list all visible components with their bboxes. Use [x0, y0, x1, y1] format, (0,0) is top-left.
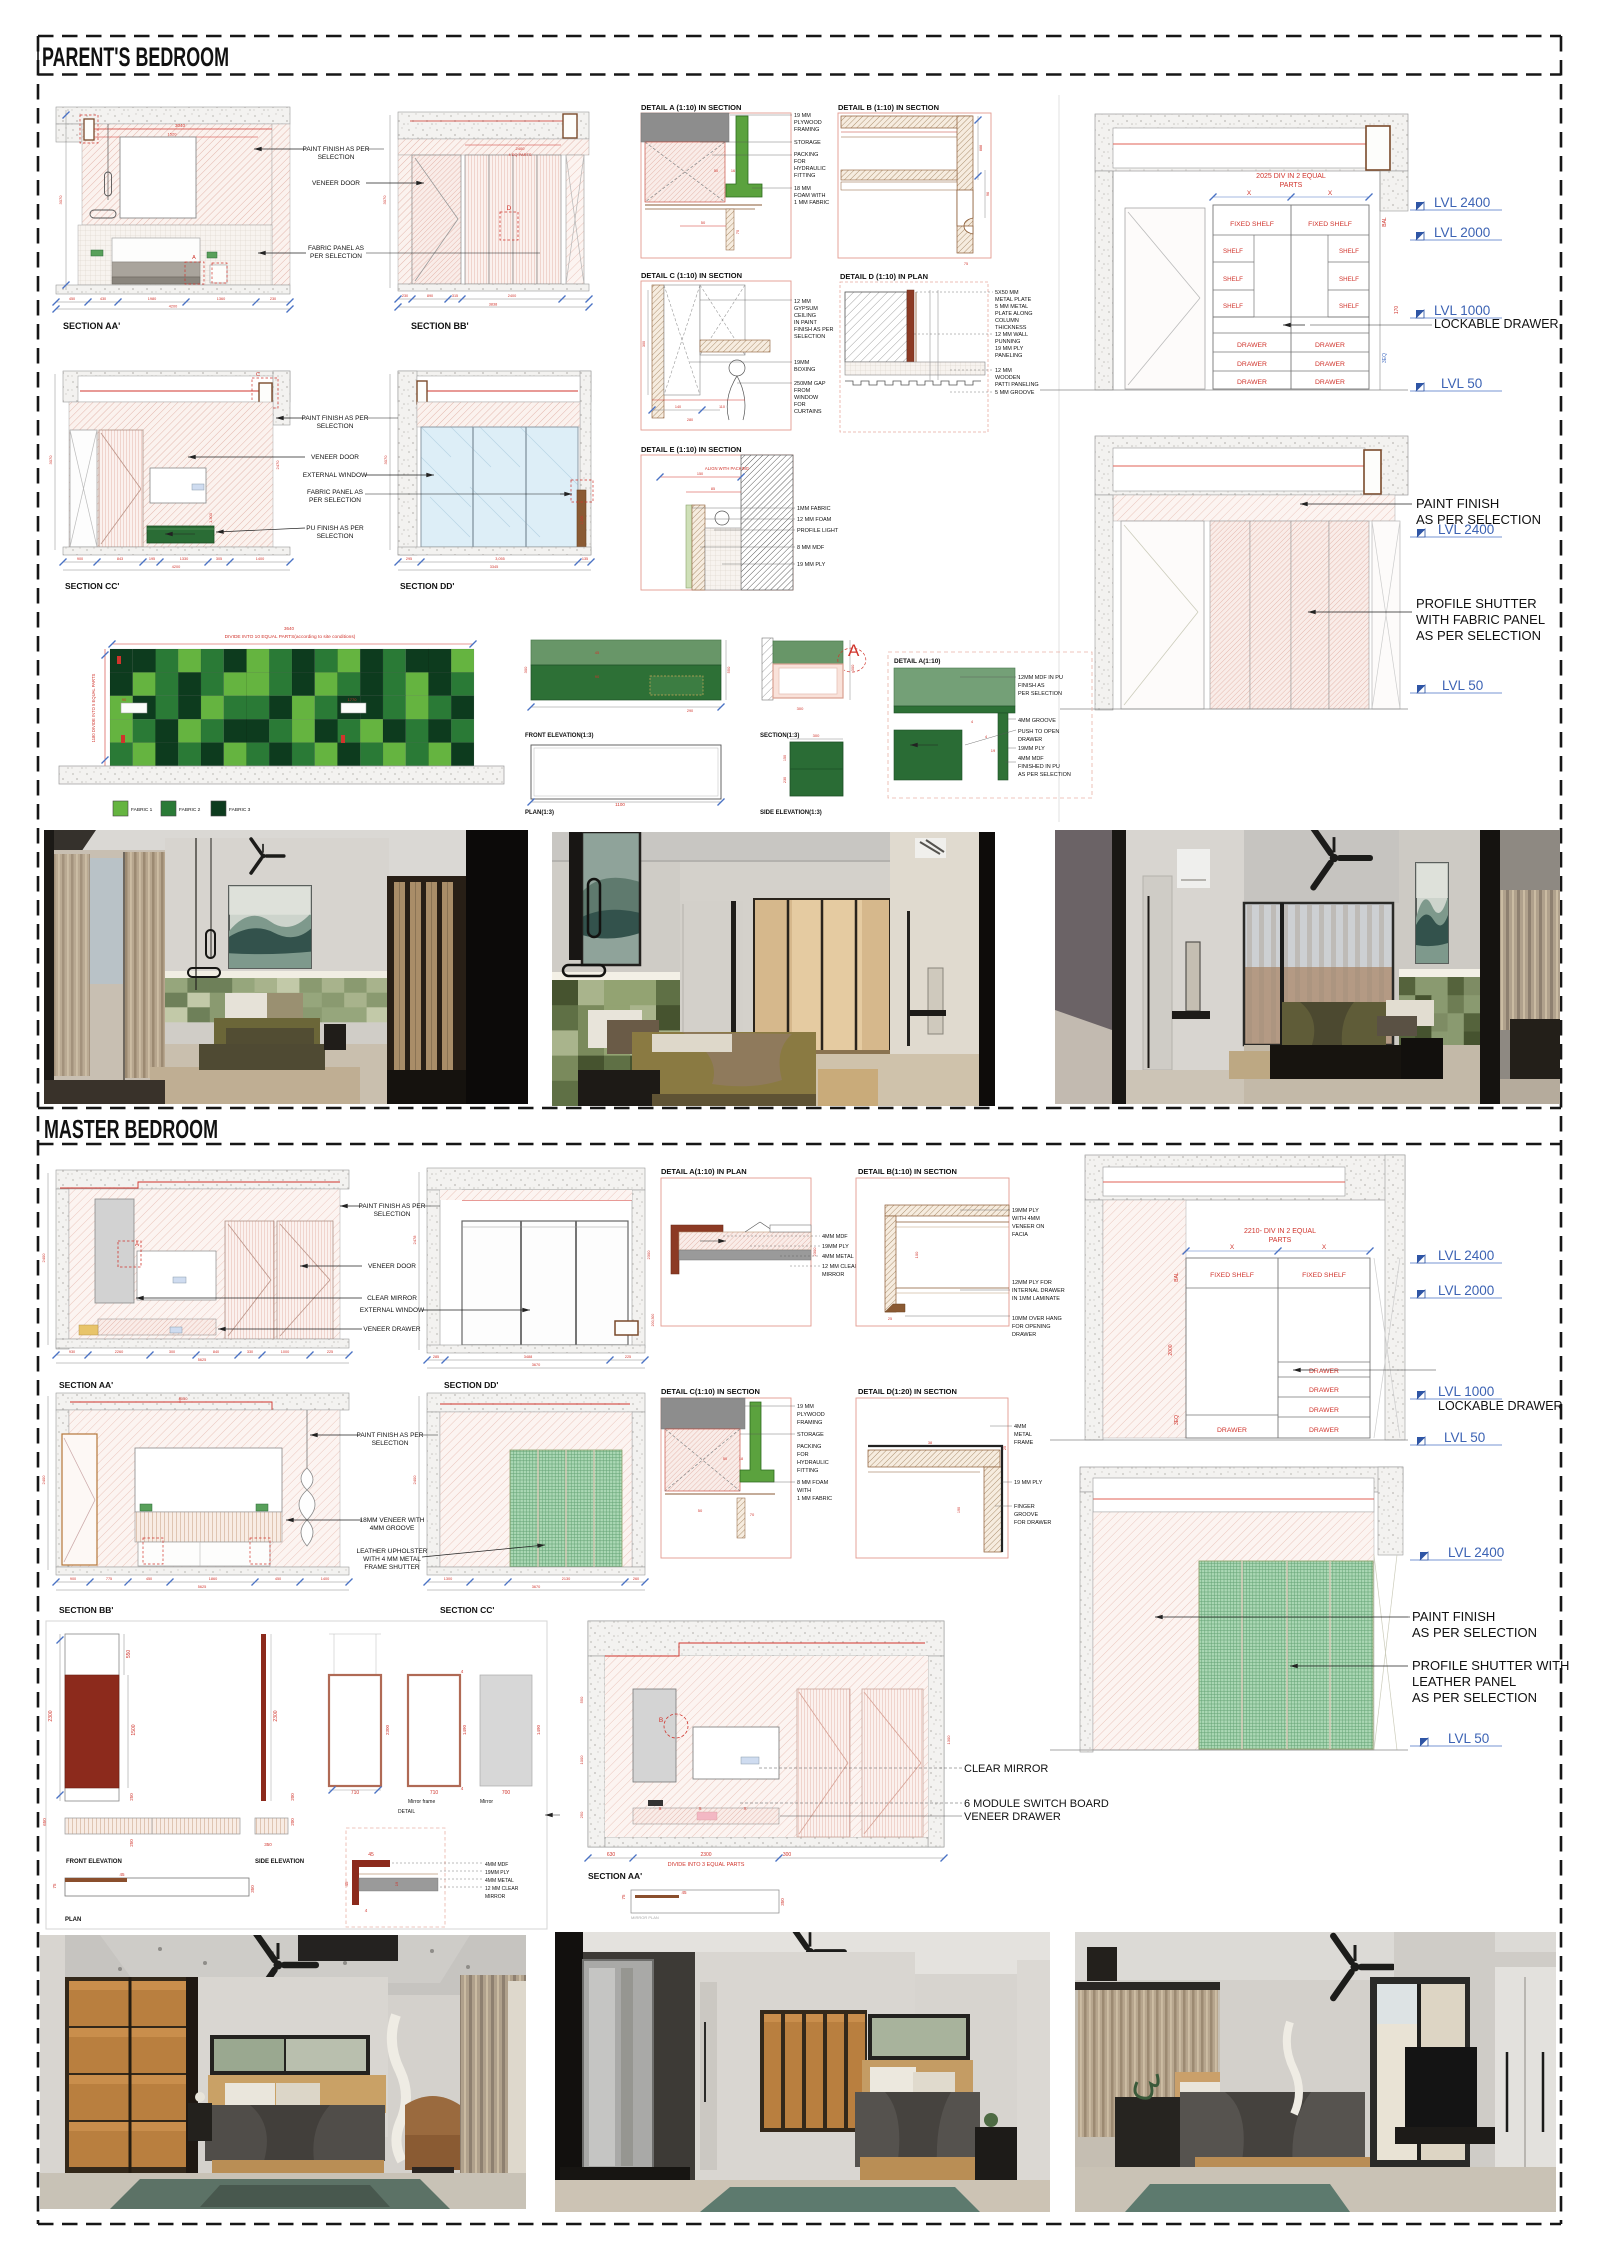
svg-text:430: 430	[100, 297, 106, 301]
svg-text:16: 16	[731, 169, 735, 173]
svg-text:STORAGE: STORAGE	[794, 140, 821, 146]
svg-text:1490: 1490	[536, 1724, 541, 1735]
svg-text:150: 150	[697, 472, 703, 476]
svg-text:50: 50	[723, 1457, 727, 1461]
svg-text:B: B	[659, 1717, 663, 1724]
svg-text:4MM GROOVE: 4MM GROOVE	[1018, 718, 1056, 724]
svg-text:305: 305	[216, 557, 222, 561]
svg-text:280: 280	[687, 418, 693, 422]
svg-text:3345: 3345	[490, 565, 498, 569]
svg-text:1,300: 1,300	[208, 512, 213, 523]
svg-text:FRAMING: FRAMING	[794, 127, 819, 133]
svg-text:STORAGE: STORAGE	[797, 1432, 824, 1438]
svg-text:EXTERNAL WINDOW: EXTERNAL WINDOW	[303, 472, 368, 479]
svg-text:PARENT'S BEDROOM: PARENT'S BEDROOM	[42, 42, 229, 72]
svg-text:3070: 3070	[382, 195, 387, 205]
svg-text:700: 700	[502, 1790, 511, 1796]
svg-text:3,055: 3,055	[495, 557, 505, 561]
svg-text:SELECTION: SELECTION	[317, 423, 354, 430]
svg-text:1300: 1300	[444, 1577, 452, 1581]
svg-text:PLAN(1:3): PLAN(1:3)	[525, 810, 554, 816]
svg-text:HYDRAULIC: HYDRAULIC	[797, 1460, 829, 1466]
svg-text:LVL 50: LVL 50	[1442, 678, 1483, 693]
svg-text:BAL: BAL	[1174, 1272, 1180, 1282]
svg-text:25: 25	[1003, 1446, 1007, 1450]
svg-text:315: 315	[452, 294, 458, 298]
svg-text:300: 300	[783, 1852, 792, 1858]
svg-text:FOR OPENING: FOR OPENING	[1012, 1324, 1051, 1330]
svg-text:630: 630	[607, 1852, 616, 1858]
svg-text:4MM MDF: 4MM MDF	[485, 1862, 508, 1868]
svg-text:MASTER BEDROOM: MASTER BEDROOM	[44, 1114, 218, 1144]
svg-text:DETAIL: DETAIL	[398, 1809, 415, 1815]
svg-text:350: 350	[780, 1898, 785, 1906]
svg-text:12MM MDF IN PU: 12MM MDF IN PU	[1018, 675, 1063, 681]
svg-text:VENEER ON: VENEER ON	[1012, 1224, 1044, 1230]
svg-text:PAINT FINISH: PAINT FINISH	[1412, 1609, 1495, 1624]
svg-text:THICKNESS: THICKNESS	[995, 325, 1027, 331]
svg-text:A: A	[135, 1242, 139, 1248]
svg-text:HYDRAULIC: HYDRAULIC	[794, 166, 826, 172]
svg-text:75: 75	[52, 1883, 57, 1889]
svg-text:300: 300	[850, 664, 855, 671]
svg-text:DRAWER: DRAWER	[1237, 379, 1267, 386]
svg-text:230: 230	[270, 297, 276, 301]
svg-text:Mirror frame: Mirror frame	[408, 1799, 435, 1805]
svg-text:DRAWER: DRAWER	[1237, 342, 1267, 349]
svg-text:4 EQ PARTS: 4 EQ PARTS	[508, 152, 532, 157]
svg-text:225: 225	[327, 1350, 333, 1354]
svg-text:4MM METAL: 4MM METAL	[485, 1878, 514, 1884]
svg-text:DETAIL A(1:10) IN PLAN: DETAIL A(1:10) IN PLAN	[661, 1167, 747, 1176]
svg-text:X: X	[743, 1806, 746, 1811]
svg-text:SHELF: SHELF	[1223, 303, 1243, 310]
svg-text:330: 330	[247, 1350, 253, 1354]
svg-text:2300: 2300	[700, 1852, 711, 1858]
svg-text:DIVIDE INTO 10 EQUAL PARTS(acc: DIVIDE INTO 10 EQUAL PARTS(according to …	[225, 634, 356, 640]
svg-text:45: 45	[119, 1872, 125, 1877]
svg-text:LVL 2000: LVL 2000	[1434, 225, 1490, 240]
svg-text:2470: 2470	[275, 460, 280, 470]
svg-text:SECTION BB': SECTION BB'	[411, 321, 469, 331]
svg-text:450: 450	[69, 297, 75, 301]
svg-text:19: 19	[394, 1881, 399, 1886]
svg-text:3640: 3640	[284, 626, 295, 631]
svg-text:SHELF: SHELF	[1223, 248, 1243, 255]
svg-text:710: 710	[351, 1790, 360, 1796]
svg-text:PLAN: PLAN	[65, 1917, 81, 1923]
svg-text:SELECTION: SELECTION	[374, 1211, 411, 1218]
svg-text:3670: 3670	[532, 1585, 540, 1589]
svg-text:CEILING: CEILING	[794, 313, 816, 319]
svg-text:ALIGN WITH PACKING: ALIGN WITH PACKING	[705, 466, 749, 471]
svg-text:2260: 2260	[115, 1350, 123, 1354]
svg-text:1360: 1360	[217, 297, 225, 301]
svg-text:550: 550	[726, 666, 731, 673]
svg-text:45: 45	[681, 1890, 687, 1895]
svg-text:FRONT ELEVATION: FRONT ELEVATION	[66, 1859, 122, 1865]
svg-text:8 MM FOAM: 8 MM FOAM	[797, 1480, 829, 1486]
svg-text:285: 285	[433, 1355, 439, 1359]
svg-text:SECTION CC': SECTION CC'	[440, 1605, 494, 1615]
svg-text:4050: 4050	[179, 1396, 189, 1401]
svg-text:FINISH AS: FINISH AS	[1018, 683, 1045, 689]
svg-text:1300: 1300	[946, 1735, 951, 1745]
svg-text:PUSH TO OPEN: PUSH TO OPEN	[1018, 729, 1059, 735]
svg-text:BOXING: BOXING	[794, 367, 815, 373]
svg-text:FABRIC 1: FABRIC 1	[131, 807, 153, 813]
svg-text:VENEER DRAWER: VENEER DRAWER	[964, 1811, 1061, 1823]
svg-text:FOR: FOR	[797, 1452, 809, 1458]
svg-text:19MM: 19MM	[794, 360, 810, 366]
svg-text:FIXED SHELF: FIXED SHELF	[1302, 1272, 1346, 1279]
svg-text:2400: 2400	[41, 1253, 46, 1263]
svg-text:775: 775	[106, 1577, 112, 1581]
svg-text:SELECTION: SELECTION	[794, 334, 825, 340]
svg-text:CURTAINS: CURTAINS	[794, 409, 822, 415]
svg-text:2400: 2400	[516, 146, 526, 151]
svg-text:3EQ: 3EQ	[1174, 1415, 1180, 1425]
svg-text:1500: 1500	[131, 1724, 137, 1735]
svg-text:38: 38	[928, 1441, 932, 1445]
svg-text:12 MM: 12 MM	[995, 368, 1012, 374]
svg-text:LEATHER PANEL: LEATHER PANEL	[1412, 1674, 1516, 1689]
svg-text:1 MM FABRIC: 1 MM FABRIC	[794, 200, 829, 206]
svg-text:1860: 1860	[209, 1577, 217, 1581]
svg-text:2025 DIV IN 2 EQUAL: 2025 DIV IN 2 EQUAL	[1256, 173, 1326, 180]
svg-text:710: 710	[430, 1790, 439, 1796]
svg-text:840: 840	[213, 1350, 219, 1354]
svg-text:260: 260	[633, 1577, 639, 1581]
svg-text:6 MODULE SWITCH BOARD: 6 MODULE SWITCH BOARD	[964, 1798, 1109, 1810]
svg-text:4MM MDF: 4MM MDF	[822, 1234, 848, 1240]
svg-text:45: 45	[595, 650, 600, 655]
svg-text:SELECTION: SELECTION	[372, 1440, 409, 1447]
svg-text:225: 225	[625, 1355, 631, 1359]
svg-text:2400: 2400	[412, 1475, 417, 1485]
svg-text:DETAIL E (1:10) IN SECTION: DETAIL E (1:10) IN SECTION	[641, 445, 742, 454]
svg-text:PAINT FINISH AS PER: PAINT FINISH AS PER	[302, 415, 369, 422]
svg-text:DRAWER: DRAWER	[1217, 1427, 1247, 1434]
svg-text:3040: 3040	[175, 123, 186, 128]
svg-text:5 MM GROOVE: 5 MM GROOVE	[995, 390, 1035, 396]
svg-text:DRAWER: DRAWER	[1309, 1387, 1339, 1394]
svg-text:1180 DIVIDE INTO 5 EQUAL PARTS: 1180 DIVIDE INTO 5 EQUAL PARTS	[91, 673, 96, 742]
svg-text:SHELF: SHELF	[1339, 303, 1359, 310]
svg-text:200,300: 200,300	[651, 1314, 655, 1327]
svg-text:5625: 5625	[198, 1585, 206, 1589]
svg-text:PER SELECTION: PER SELECTION	[1018, 691, 1062, 697]
svg-text:SECTION BB': SECTION BB'	[59, 1605, 113, 1615]
svg-text:INTERNAL DRAWER: INTERNAL DRAWER	[1012, 1288, 1065, 1294]
svg-text:DETAIL C(1:10) IN SECTION: DETAIL C(1:10) IN SECTION	[661, 1387, 760, 1396]
svg-text:DRAWER: DRAWER	[1309, 1368, 1339, 1375]
svg-text:45: 45	[368, 1852, 374, 1858]
svg-text:350: 350	[250, 1885, 255, 1893]
svg-text:930: 930	[69, 1350, 75, 1354]
svg-text:1400: 1400	[256, 557, 264, 561]
svg-text:FOAM WITH: FOAM WITH	[794, 193, 825, 199]
svg-text:WINDOW: WINDOW	[794, 395, 819, 401]
svg-text:FINGER: FINGER	[1014, 1504, 1035, 1510]
svg-text:19MM PLY: 19MM PLY	[1012, 1208, 1039, 1214]
svg-text:BAL: BAL	[1382, 217, 1388, 227]
svg-text:250: 250	[579, 1811, 584, 1818]
svg-text:WITH 4 MM METAL: WITH 4 MM METAL	[363, 1556, 421, 1563]
svg-text:200: 200	[290, 1818, 295, 1826]
svg-text:LOCKABLE DRAWER: LOCKABLE DRAWER	[1438, 1399, 1563, 1413]
svg-text:550: 550	[126, 1650, 132, 1659]
svg-text:4MM: 4MM	[1014, 1424, 1027, 1430]
svg-text:1770: 1770	[348, 697, 358, 702]
svg-text:96: 96	[986, 192, 990, 196]
svg-text:19: 19	[991, 748, 996, 753]
svg-text:75: 75	[621, 1894, 626, 1900]
svg-text:19 MM PLY: 19 MM PLY	[797, 562, 826, 568]
svg-text:LVL 50: LVL 50	[1444, 1430, 1485, 1445]
svg-text:PLYWOOD: PLYWOOD	[797, 1412, 825, 1418]
svg-text:FITTING: FITTING	[794, 173, 815, 179]
svg-text:DRAWER: DRAWER	[1315, 342, 1345, 349]
svg-text:X: X	[658, 1806, 661, 1811]
svg-text:4MM GROOVE: 4MM GROOVE	[370, 1525, 415, 1532]
svg-text:3070: 3070	[383, 455, 388, 465]
svg-text:DETAIL C (1:10) IN SECTION: DETAIL C (1:10) IN SECTION	[641, 271, 742, 280]
svg-text:FABRIC PANEL AS: FABRIC PANEL AS	[308, 245, 365, 252]
svg-text:LVL 2400: LVL 2400	[1438, 1248, 1494, 1263]
svg-text:FABRIC 3: FABRIC 3	[229, 807, 251, 813]
svg-text:300: 300	[642, 341, 646, 347]
svg-text:2130: 2130	[562, 1577, 570, 1581]
svg-text:135: 135	[582, 557, 588, 561]
svg-text:SELECTION: SELECTION	[318, 154, 355, 161]
svg-text:1,200: 1,200	[580, 516, 584, 525]
svg-text:2300: 2300	[48, 1710, 54, 1721]
svg-text:MIRROR: MIRROR	[485, 1894, 506, 1900]
svg-text:300: 300	[797, 706, 804, 711]
svg-text:SECTION DD': SECTION DD'	[444, 1380, 498, 1390]
svg-text:300: 300	[169, 1350, 175, 1354]
svg-text:PLYWOOD: PLYWOOD	[794, 120, 822, 126]
svg-text:DRAWER: DRAWER	[1012, 1332, 1036, 1338]
svg-text:5X50 MM: 5X50 MM	[995, 290, 1019, 296]
svg-text:VENEER DOOR: VENEER DOOR	[368, 1263, 416, 1270]
svg-text:SECTION DD': SECTION DD'	[400, 581, 454, 591]
svg-text:3EQ: 3EQ	[1382, 353, 1388, 363]
svg-text:X: X	[1322, 1244, 1327, 1251]
svg-text:1000: 1000	[579, 1755, 584, 1765]
svg-text:PROFILE SHUTTER WITH: PROFILE SHUTTER WITH	[1412, 1658, 1569, 1673]
svg-text:DRAWER: DRAWER	[1315, 361, 1345, 368]
svg-text:150: 150	[783, 755, 787, 761]
svg-text:550: 550	[579, 1696, 584, 1703]
svg-text:300: 300	[523, 666, 528, 673]
svg-text:DETAIL B (1:10) IN SECTION: DETAIL B (1:10) IN SECTION	[838, 103, 939, 112]
svg-text:1330: 1330	[180, 557, 188, 561]
svg-text:1980: 1980	[148, 297, 156, 301]
svg-text:DETAIL A(1:10): DETAIL A(1:10)	[894, 658, 940, 665]
svg-text:250: 250	[129, 1793, 134, 1801]
svg-text:FOR DRAWER: FOR DRAWER	[1014, 1520, 1051, 1526]
svg-text:85: 85	[711, 487, 715, 491]
svg-text:PROFILE SHUTTER: PROFILE SHUTTER	[1416, 596, 1537, 611]
svg-text:12 MM CLEAR: 12 MM CLEAR	[822, 1264, 859, 1270]
svg-text:18 MM: 18 MM	[794, 186, 811, 192]
svg-text:X: X	[1328, 190, 1333, 197]
svg-text:3070: 3070	[48, 455, 53, 465]
svg-text:VENEER DRAWER: VENEER DRAWER	[363, 1326, 420, 1333]
svg-text:FRAME: FRAME	[1014, 1440, 1034, 1446]
svg-text:FACIA: FACIA	[1012, 1232, 1028, 1238]
svg-text:LVL 2400: LVL 2400	[1448, 1545, 1504, 1560]
svg-text:250MM GAP: 250MM GAP	[794, 381, 826, 387]
svg-text:Mirror: Mirror	[480, 1799, 493, 1805]
svg-text:SECTION AA': SECTION AA'	[59, 1380, 113, 1390]
svg-text:LVL 2400: LVL 2400	[1438, 522, 1494, 537]
svg-text:75: 75	[964, 262, 968, 266]
svg-text:LVL 1000: LVL 1000	[1434, 303, 1490, 318]
svg-text:LVL 1000: LVL 1000	[1438, 1384, 1494, 1399]
svg-text:A: A	[192, 255, 196, 261]
svg-text:110: 110	[719, 405, 725, 409]
svg-text:1100: 1100	[615, 802, 625, 807]
svg-text:PACKING: PACKING	[797, 1444, 821, 1450]
svg-text:12 MM WALL: 12 MM WALL	[995, 332, 1028, 338]
svg-text:VENEER DOOR: VENEER DOOR	[312, 180, 360, 187]
svg-text:4200: 4200	[172, 565, 180, 569]
svg-text:SELECTION: SELECTION	[317, 533, 354, 540]
svg-text:18: 18	[739, 1457, 743, 1461]
svg-text:LVL 50: LVL 50	[1448, 1731, 1489, 1746]
svg-text:195: 195	[149, 557, 155, 561]
svg-text:PER SELECTION: PER SELECTION	[309, 497, 361, 504]
svg-text:200: 200	[290, 1793, 295, 1801]
svg-text:PAINT FINISH AS PER: PAINT FINISH AS PER	[359, 1203, 426, 1210]
svg-text:PUNNING: PUNNING	[995, 339, 1020, 345]
svg-text:PU FINISH AS PER: PU FINISH AS PER	[306, 525, 364, 532]
svg-text:SECTION AA': SECTION AA'	[63, 321, 120, 331]
svg-text:170: 170	[1394, 306, 1400, 315]
svg-text:250: 250	[129, 1839, 134, 1847]
svg-text:3670: 3670	[532, 1363, 540, 1367]
svg-text:WITH FABRIC PANEL: WITH FABRIC PANEL	[1416, 612, 1545, 627]
svg-text:1MM FABRIC: 1MM FABRIC	[797, 506, 831, 512]
svg-text:COLUMN: COLUMN	[995, 318, 1019, 324]
svg-text:1400: 1400	[321, 1577, 329, 1581]
svg-text:DETAIL A (1:10) IN SECTION: DETAIL A (1:10) IN SECTION	[641, 103, 741, 112]
svg-text:70: 70	[750, 1512, 755, 1517]
svg-text:AS PER SELECTION: AS PER SELECTION	[1018, 772, 1071, 778]
svg-text:WITH 4MM: WITH 4MM	[1012, 1216, 1040, 1222]
svg-text:DRAWER: DRAWER	[1309, 1407, 1339, 1414]
svg-text:FRAME SHUTTER: FRAME SHUTTER	[364, 1564, 420, 1571]
svg-text:SIDE ELEVATION(1:3): SIDE ELEVATION(1:3)	[760, 810, 822, 816]
svg-text:290: 290	[687, 709, 693, 713]
svg-text:WOODEN: WOODEN	[995, 375, 1020, 381]
svg-text:SHELF: SHELF	[1339, 248, 1359, 255]
svg-text:2300: 2300	[273, 1710, 279, 1721]
svg-text:X: X	[698, 1806, 701, 1811]
svg-text:5 MM METAL: 5 MM METAL	[995, 304, 1028, 310]
svg-text:1490: 1490	[462, 1724, 467, 1735]
svg-text:19MM PLY: 19MM PLY	[822, 1244, 849, 1250]
svg-text:EXTERNAL WINDOW: EXTERNAL WINDOW	[360, 1307, 425, 1314]
svg-text:12MM PLY FOR: 12MM PLY FOR	[1012, 1280, 1052, 1286]
svg-text:LVL 50: LVL 50	[1441, 376, 1482, 391]
svg-text:2300: 2300	[385, 1724, 390, 1735]
svg-text:FRAMING: FRAMING	[797, 1420, 822, 1426]
svg-text:FINISHED IN PU: FINISHED IN PU	[1018, 764, 1060, 770]
svg-text:3838: 3838	[489, 303, 497, 307]
svg-text:12 MM FOAM: 12 MM FOAM	[797, 517, 832, 523]
svg-text:900: 900	[77, 557, 83, 561]
svg-text:450: 450	[146, 1577, 152, 1581]
svg-text:SECTION CC': SECTION CC'	[65, 581, 119, 591]
svg-text:FIXED SHELF: FIXED SHELF	[1308, 221, 1352, 228]
svg-text:METAL PLATE: METAL PLATE	[995, 297, 1032, 303]
svg-text:900: 900	[70, 1577, 76, 1581]
svg-text:45: 45	[344, 1881, 349, 1887]
svg-text:650: 650	[42, 1818, 47, 1826]
svg-text:GYPSUM: GYPSUM	[794, 306, 818, 312]
svg-text:MIRROR: MIRROR	[822, 1272, 844, 1278]
svg-text:X: X	[1230, 1244, 1235, 1251]
svg-text:FROM: FROM	[794, 388, 811, 394]
svg-text:1 MM FABRIC: 1 MM FABRIC	[797, 1496, 832, 1502]
svg-text:50: 50	[698, 1508, 703, 1513]
svg-text:2300: 2300	[812, 1247, 817, 1257]
svg-text:DRAWER: DRAWER	[1237, 361, 1267, 368]
svg-text:PACKING: PACKING	[794, 152, 818, 158]
svg-text:5625: 5625	[198, 1358, 206, 1362]
svg-text:140: 140	[675, 405, 681, 409]
svg-text:FOR: FOR	[794, 159, 806, 165]
svg-text:PARTS: PARTS	[1269, 1237, 1292, 1244]
svg-text:DETAIL D(1:20) IN SECTION: DETAIL D(1:20) IN SECTION	[858, 1387, 957, 1396]
svg-text:FOR: FOR	[794, 402, 806, 408]
svg-text:AS PER SELECTION: AS PER SELECTION	[1416, 628, 1541, 643]
svg-text:IN PAINT: IN PAINT	[794, 320, 817, 326]
svg-text:FRONT ELEVATION(1:3): FRONT ELEVATION(1:3)	[525, 733, 593, 739]
svg-text:FINISH AS PER: FINISH AS PER	[794, 327, 833, 333]
svg-text:DRAWER: DRAWER	[1018, 737, 1042, 743]
svg-text:X: X	[1247, 190, 1252, 197]
svg-text:CLEAR MIRROR: CLEAR MIRROR	[964, 1763, 1048, 1775]
svg-text:AS PER SELECTION: AS PER SELECTION	[1412, 1625, 1537, 1640]
svg-text:90: 90	[595, 674, 600, 679]
svg-text:DRAWER: DRAWER	[1315, 379, 1345, 386]
svg-text:DETAIL D (1:10) IN PLAN: DETAIL D (1:10) IN PLAN	[840, 272, 928, 281]
svg-text:DETAIL B(1:10) IN SECTION: DETAIL B(1:10) IN SECTION	[858, 1167, 957, 1176]
svg-text:2300: 2300	[646, 1250, 651, 1260]
svg-text:MIRROR PLAN: MIRROR PLAN	[631, 1915, 659, 1920]
svg-text:FABRIC 2: FABRIC 2	[179, 807, 201, 813]
svg-text:PATTI PANELING: PATTI PANELING	[995, 382, 1039, 388]
svg-text:890: 890	[427, 294, 433, 298]
svg-text:3488: 3488	[524, 1355, 532, 1359]
svg-text:PAINT FINISH AS PER: PAINT FINISH AS PER	[357, 1432, 424, 1439]
svg-text:PLATE ALONG: PLATE ALONG	[995, 311, 1033, 317]
svg-text:GROOVE: GROOVE	[1014, 1512, 1038, 1518]
svg-text:SHELF: SHELF	[1339, 276, 1359, 283]
svg-text:230: 230	[783, 777, 787, 783]
svg-text:DRAWER: DRAWER	[1309, 1427, 1339, 1434]
svg-text:AS PER SELECTION: AS PER SELECTION	[1412, 1690, 1537, 1705]
svg-text:DIVIDE INTO 3 EQUAL PARTS: DIVIDE INTO 3 EQUAL PARTS	[668, 1862, 745, 1868]
svg-text:4MM METAL: 4MM METAL	[822, 1254, 854, 1260]
svg-text:METAL: METAL	[1014, 1432, 1032, 1438]
svg-text:2210- DIV IN 2 EQUAL: 2210- DIV IN 2 EQUAL	[1244, 1228, 1316, 1235]
